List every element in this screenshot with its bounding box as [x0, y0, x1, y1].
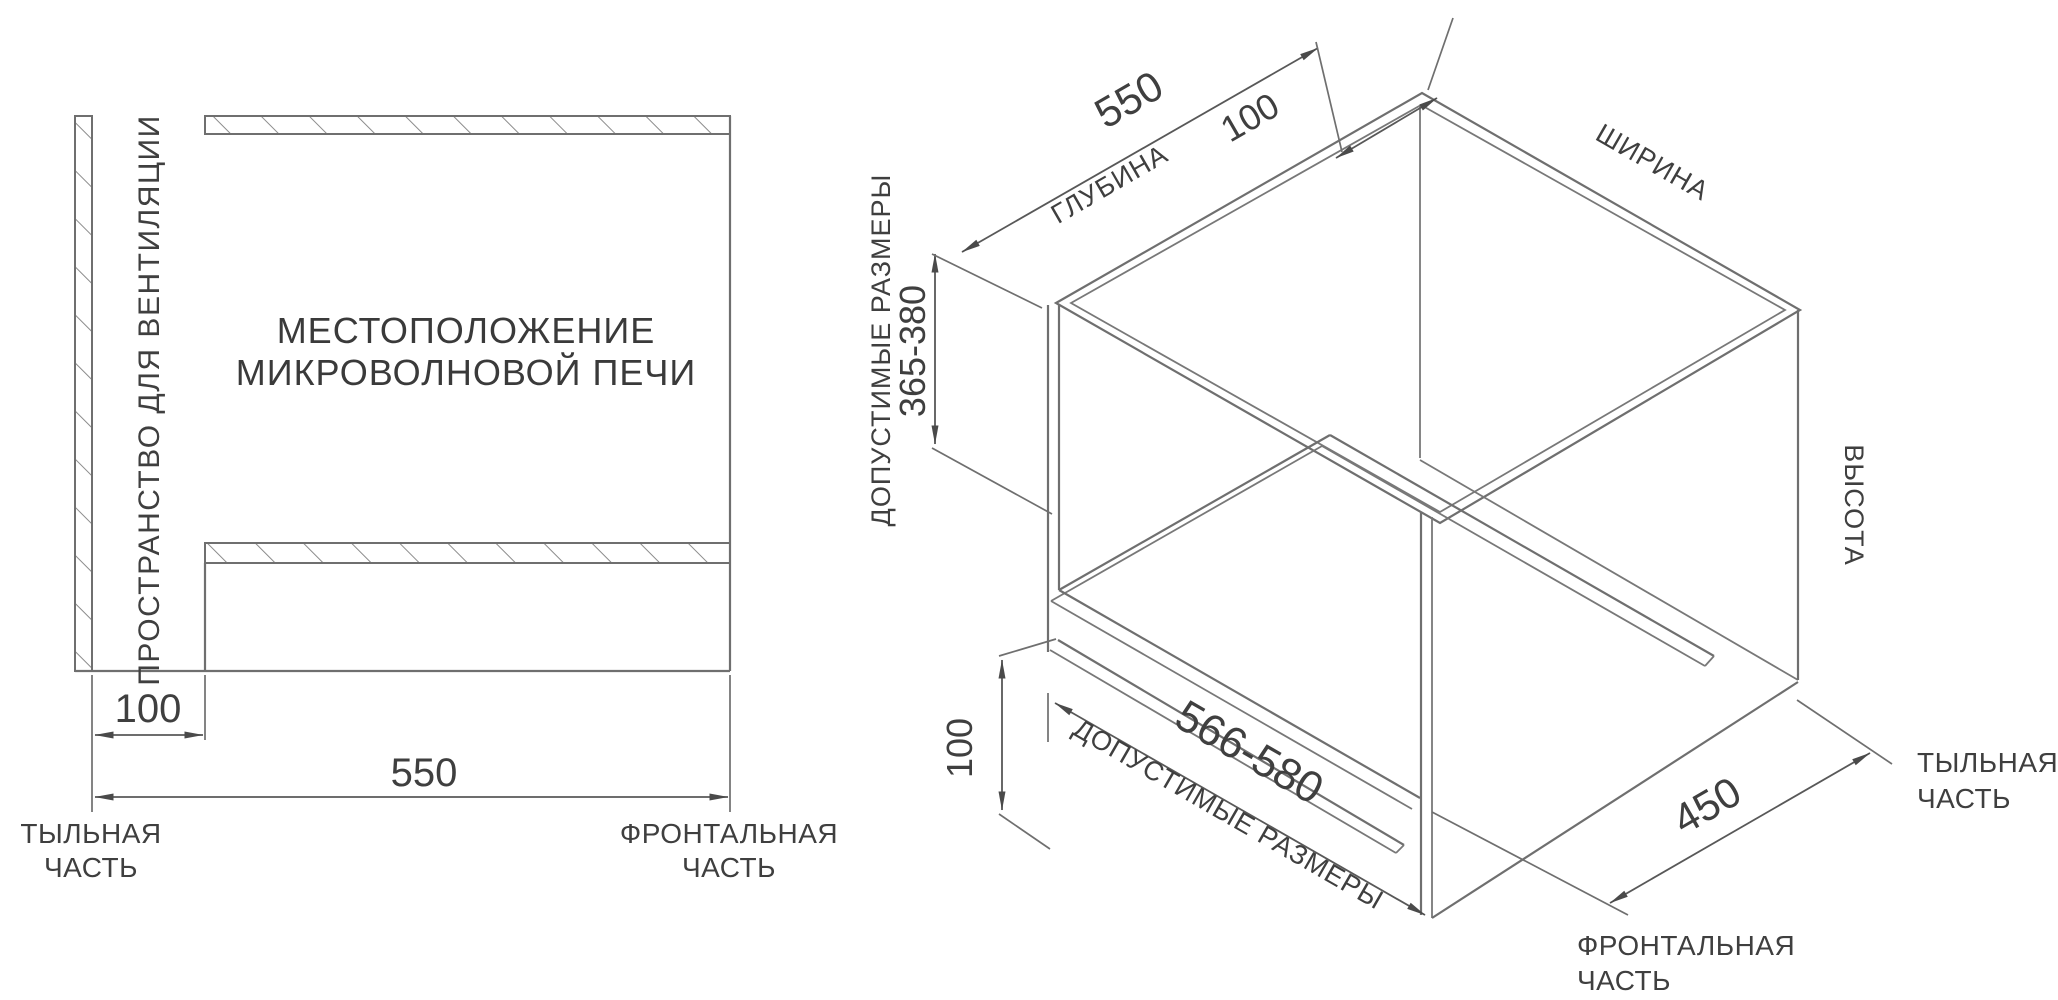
front-part-label-line2: ЧАСТЬ	[682, 852, 776, 883]
height-axis-label: ВЫСОТА	[1839, 444, 1869, 565]
ext-100b-bottom	[999, 814, 1050, 849]
rear-part-label-line1: ТЫЛЬНАЯ	[20, 818, 161, 849]
location-title-line2: МИКРОВОЛНОВОЙ ПЕЧИ	[236, 351, 697, 393]
bottom-shelf-hatch	[205, 543, 730, 563]
ext-450-upper	[1797, 700, 1892, 764]
dim-100-label: 100	[115, 687, 182, 731]
dim-line-450	[1610, 753, 1870, 903]
base-front-edge-upper2	[1051, 601, 1412, 809]
front-part-label-line1: ФРОНТАЛЬНАЯ	[620, 818, 838, 849]
iso-rear-part-label-line2: ЧАСТЬ	[1917, 783, 2011, 814]
left-section-view: МЕСТОПОЛОЖЕНИЕ МИКРОВОЛНОВОЙ ПЕЧИ ПРОСТР…	[20, 114, 838, 883]
dim-100-bottom-label: 100	[939, 718, 980, 778]
dim-100-rear-gap-label: 100	[1213, 84, 1286, 150]
floor-front-lip	[1330, 435, 1714, 656]
iso-front-part-label-line2: ЧАСТЬ	[1577, 965, 1671, 996]
dim-line-100-rear-gap	[1336, 98, 1437, 158]
dim-550-depth-label: 550	[1087, 62, 1171, 138]
depth-axis-label: ГЛУБИНА	[1046, 139, 1173, 230]
installation-diagram-page: МЕСТОПОЛОЖЕНИЕ МИКРОВОЛНОВОЙ ПЕЧИ ПРОСТР…	[0, 0, 2058, 1000]
tick-apex	[1428, 18, 1453, 90]
floor-front-lip-thickness	[1322, 446, 1714, 666]
ext-365-top	[932, 254, 1042, 308]
floor-left-edge	[1059, 435, 1330, 590]
rear-part-label-line2: ЧАСТЬ	[44, 852, 138, 883]
diagram-svg: МЕСТОПОЛОЖЕНИЕ МИКРОВОЛНОВОЙ ПЕЧИ ПРОСТР…	[0, 0, 2058, 1000]
dim-450-label: 450	[1665, 768, 1749, 844]
tick-550-100	[1316, 42, 1342, 152]
iso-front-part-label-line1: ФРОНТАЛЬНАЯ	[1577, 930, 1795, 961]
dim-365-380-label: 365-380	[892, 285, 933, 417]
floor-left-edge-thickness	[1051, 446, 1322, 601]
width-axis-label: ШИРИНА	[1591, 118, 1714, 207]
back-bottom-edge	[1420, 460, 1798, 680]
location-title-line1: МЕСТОПОЛОЖЕНИЕ	[277, 310, 656, 351]
iso-rear-part-label-line1: ТЫЛЬНАЯ	[1917, 747, 2058, 778]
ext-365-bottom	[932, 448, 1052, 514]
ventilation-space-label: ПРОСТРАНСТВО ДЛЯ ВЕНТИЛЯЦИИ	[133, 114, 166, 685]
top-shelf-hatch	[205, 116, 730, 134]
dim-550-label: 550	[391, 751, 458, 795]
right-isometric-view: 550 ГЛУБИНА 100 ШИРИНА ВЫСОТА ДОПУСТИМЫЕ…	[866, 18, 2058, 996]
rear-wall-hatch	[75, 116, 92, 671]
